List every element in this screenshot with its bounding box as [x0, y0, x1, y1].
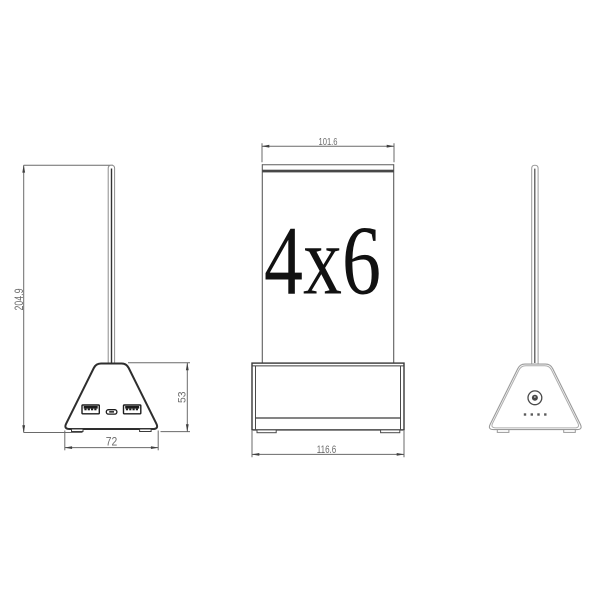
svg-text:116.6: 116.6 — [317, 444, 337, 456]
svg-text:4x6: 4x6 — [264, 207, 381, 316]
svg-text:204.9: 204.9 — [12, 288, 26, 310]
svg-text:72: 72 — [106, 435, 118, 449]
svg-text:53: 53 — [176, 392, 188, 404]
svg-text:101.6: 101.6 — [319, 136, 338, 148]
